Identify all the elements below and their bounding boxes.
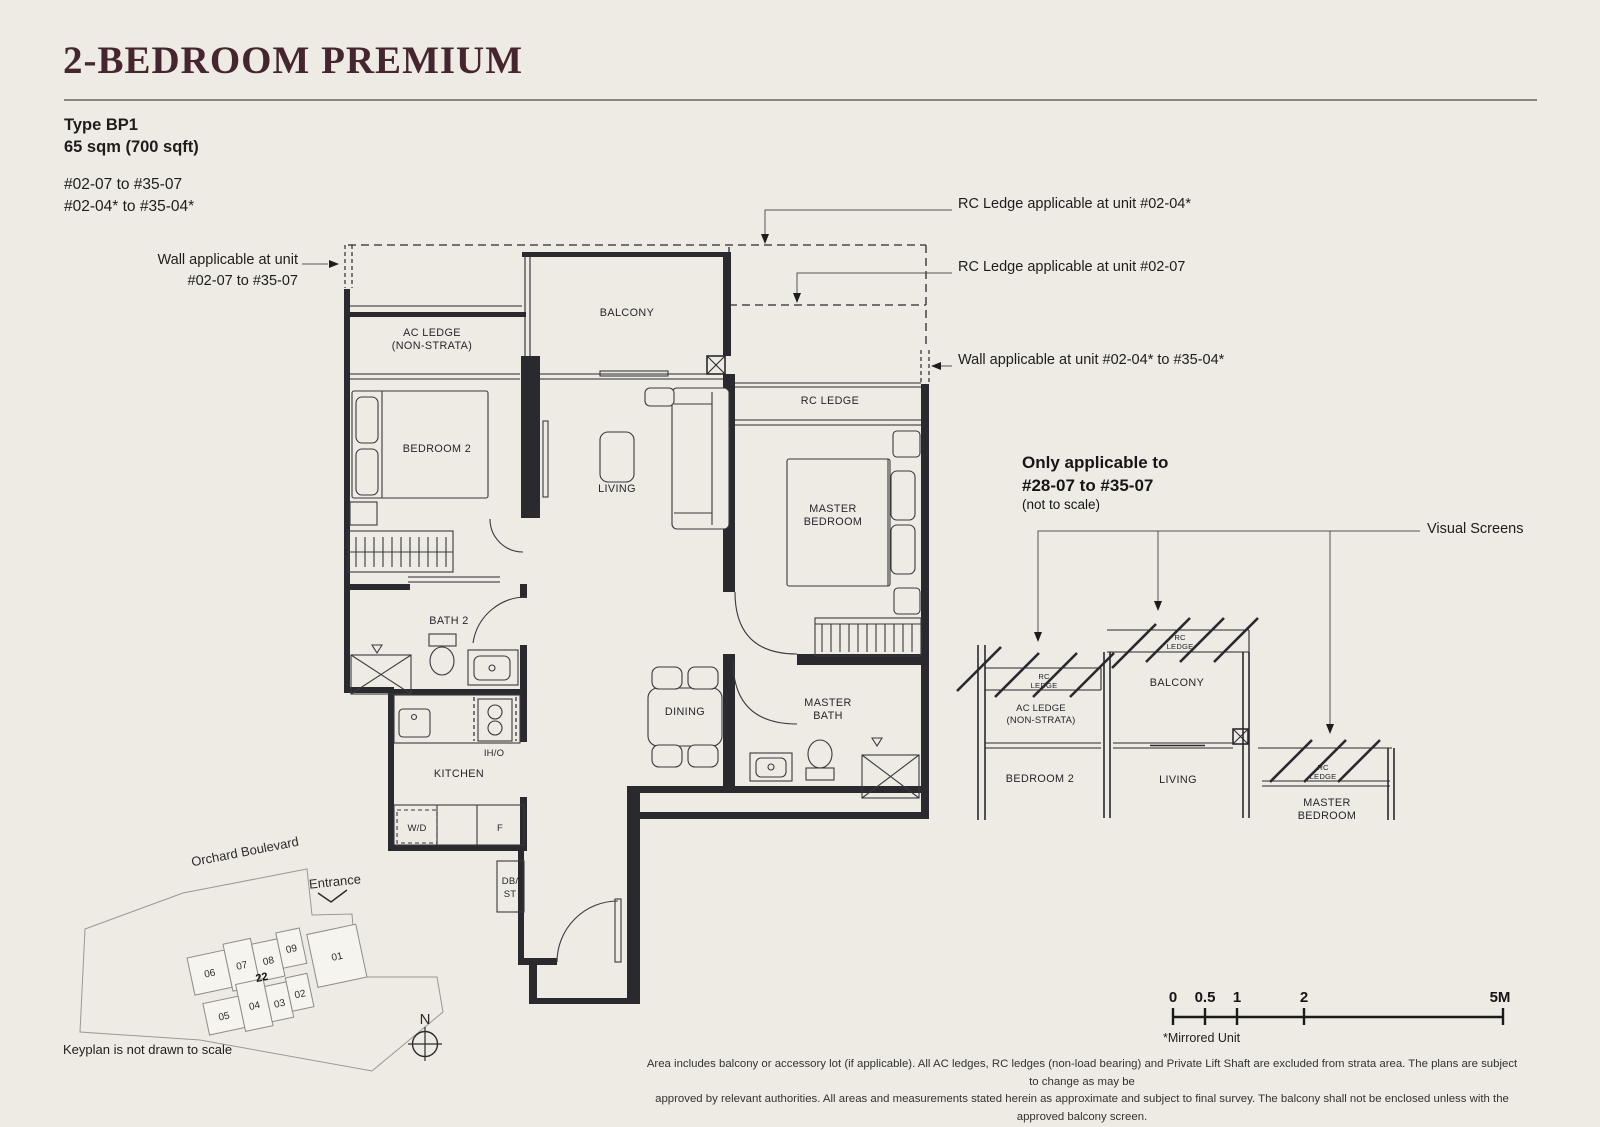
iho-label: IH/O [484, 748, 504, 759]
living-label: LIVING [598, 483, 636, 495]
scale-5m: 5M [1490, 989, 1511, 1006]
bedroom2-wardrobe [348, 531, 453, 572]
balcony-label: BALCONY [600, 307, 654, 319]
keyplan-buildings: 06 07 08 09 22 01 05 04 03 02 [186, 916, 373, 1040]
bedroom2-bed [350, 391, 488, 525]
floorplan-page: { "header": { "title": "2-BEDROOM PREMIU… [0, 0, 1600, 1127]
keyplan-street-label: Orchard Boulevard [190, 834, 300, 870]
floor-plan: AC LEDGE (NON-STRATA) BALCONY BEDROOM 2 … [344, 252, 929, 1004]
section-rc-ledge-mid2: LEDGE [1167, 642, 1194, 651]
north-label: N [420, 1011, 431, 1028]
bath2-fixtures [351, 634, 518, 694]
master-bedroom-label: MASTER [809, 503, 856, 515]
master-wardrobe [815, 618, 921, 656]
master-bedroom-label2: BEDROOM [804, 516, 863, 528]
scale-05: 0.5 [1195, 989, 1216, 1006]
scale-2: 2 [1300, 989, 1308, 1006]
living-sofa [645, 388, 729, 529]
kitchen-label: KITCHEN [434, 768, 484, 780]
north-compass-icon: N [408, 1011, 442, 1061]
keyplan-entrance-label: Entrance [308, 871, 361, 891]
section-ac-ledge2: (NON-STRATA) [1006, 715, 1075, 726]
section-rc-ledge-left2: LEDGE [1031, 681, 1058, 690]
section-rc-ledge-right2: LEDGE [1310, 772, 1337, 781]
rwdp-box-icon [707, 356, 725, 374]
dining-label: DINING [665, 706, 705, 718]
rc-ledge-label: RC LEDGE [801, 395, 859, 407]
section-balcony: BALCONY [1150, 677, 1204, 689]
keyplan-entrance-mark [318, 890, 347, 902]
dbst-label2: ST [504, 889, 517, 900]
bedroom2-label: BEDROOM 2 [403, 443, 471, 455]
section-living: LIVING [1159, 774, 1197, 786]
section-master: MASTER [1303, 797, 1350, 809]
scale-bar: 0 0.5 1 2 5M [1169, 989, 1511, 1025]
section-rc-ledge-mid: RC [1174, 633, 1186, 642]
ac-ledge-label2: (NON-STRATA) [392, 340, 473, 352]
wd-label: W/D [407, 823, 426, 834]
master-bath-label: MASTER [804, 697, 851, 709]
scale-0: 0 [1169, 989, 1177, 1006]
walls [344, 252, 929, 1004]
scale-1: 1 [1233, 989, 1241, 1006]
section-master2: BEDROOM [1298, 810, 1357, 822]
entry-door-leaf [615, 899, 621, 962]
fridge-label: F [497, 823, 503, 834]
dbst-label: DB/ [502, 876, 519, 887]
master-bath-label2: BATH [813, 710, 843, 722]
section-bedroom2: BEDROOM 2 [1006, 773, 1074, 785]
living-coffee-table [600, 432, 634, 482]
section-rc-ledge-left: RC [1038, 672, 1050, 681]
keyplan: 06 07 08 09 22 01 05 04 03 02 Orchard Bo… [80, 834, 443, 1071]
ac-ledge-label: AC LEDGE [403, 327, 461, 339]
tv-console [543, 421, 548, 497]
section-diagram: RC LEDGE AC LEDGE (NON-STRATA) BEDROOM 2… [957, 618, 1394, 822]
keyplan-unit-22: 22 [255, 971, 269, 985]
drawing-canvas: AC LEDGE (NON-STRATA) BALCONY BEDROOM 2 … [0, 0, 1600, 1127]
section-ac-ledge: AC LEDGE [1016, 703, 1066, 714]
bath2-label: BATH 2 [429, 615, 468, 627]
section-rc-ledge-right: RC [1317, 763, 1329, 772]
